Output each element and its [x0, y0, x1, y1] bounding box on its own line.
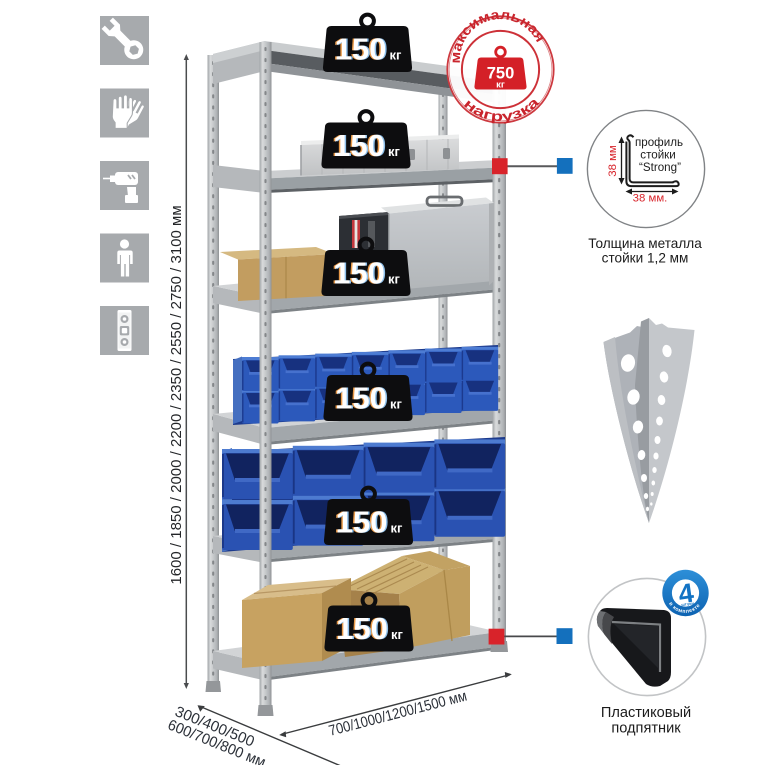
svg-text:профиль: профиль — [635, 136, 683, 149]
svg-text:“Strong”: “Strong” — [639, 161, 681, 174]
svg-text:38 мм: 38 мм — [607, 145, 619, 177]
svg-text:Пластиковый: Пластиковый — [601, 705, 691, 721]
svg-text:стойки: стойки — [640, 149, 675, 162]
svg-text:кг: кг — [496, 80, 505, 91]
svg-text:подпятник: подпятник — [611, 721, 681, 737]
svg-text:стойки 1,2 мм: стойки 1,2 мм — [602, 251, 689, 266]
svg-text:Толщина металла: Толщина металла — [588, 236, 702, 251]
svg-text:38 мм.: 38 мм. — [633, 193, 668, 205]
svg-text:1600 / 1850 / 2000 / 2200 / 23: 1600 / 1850 / 2000 / 2200 / 2350 / 2550 … — [168, 205, 185, 584]
